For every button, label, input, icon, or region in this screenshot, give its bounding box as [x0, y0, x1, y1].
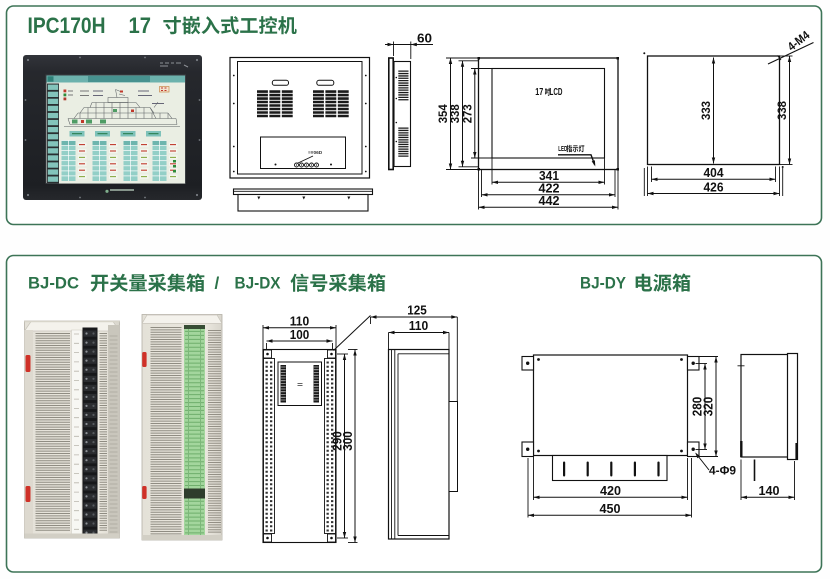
svg-text:BJ-DY: BJ-DY — [580, 274, 627, 293]
svg-text:110: 110 — [409, 319, 429, 333]
svg-text:17: 17 — [535, 87, 543, 98]
svg-text:426: 426 — [704, 180, 724, 194]
svg-text:110: 110 — [290, 315, 310, 329]
svg-text:404: 404 — [704, 166, 724, 180]
svg-text:BJ-DC: BJ-DC — [28, 274, 79, 293]
svg-text:333: 333 — [699, 101, 713, 120]
svg-text:450: 450 — [600, 501, 621, 516]
svg-text:442: 442 — [539, 193, 560, 208]
svg-text:LED: LED — [558, 146, 567, 153]
svg-text:125: 125 — [407, 304, 427, 318]
svg-text:420: 420 — [600, 483, 621, 498]
svg-text:273: 273 — [460, 104, 474, 123]
svg-text:IPC170H: IPC170H — [28, 13, 106, 38]
svg-text:60: 60 — [417, 32, 432, 46]
svg-text:320: 320 — [701, 397, 715, 417]
svg-text:≡#06D: ≡#06D — [308, 150, 323, 156]
svg-text:140: 140 — [759, 483, 780, 498]
svg-text:/: / — [215, 274, 220, 293]
svg-text:100: 100 — [290, 328, 310, 342]
svg-text:17: 17 — [129, 13, 152, 38]
svg-text:300: 300 — [341, 431, 355, 451]
svg-text:BJ-DX: BJ-DX — [235, 274, 282, 293]
svg-text:LCD: LCD — [550, 87, 563, 98]
svg-text:4-Φ9: 4-Φ9 — [709, 464, 736, 478]
svg-text:338: 338 — [775, 101, 789, 120]
